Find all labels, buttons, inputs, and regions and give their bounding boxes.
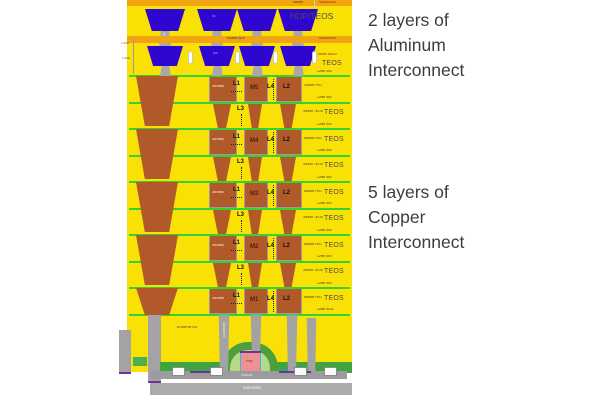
l1-label: L1 (233, 134, 240, 140)
via5-plug (293, 66, 304, 76)
passivation-label: Si3N4/SiO2 (319, 1, 336, 4)
al-metal7-line (237, 9, 277, 31)
l4-label: L4 (267, 296, 274, 302)
sin-label: 12nm SiN (317, 282, 331, 285)
al-metal6-line (147, 46, 183, 66)
seal-label: 3M seal (212, 297, 224, 300)
l2-label: L2 (283, 190, 290, 196)
fsg-label: 550nm FSG (304, 243, 322, 246)
contact-window (294, 367, 307, 376)
aluminum-annotation-line1: 2 layers of (368, 8, 464, 33)
poly-label: Poly (246, 360, 252, 363)
aluminum-annotation-line2: Aluminum (368, 33, 464, 58)
m3-label: M3 (250, 191, 258, 197)
w-plug-pill (273, 51, 278, 64)
sin-label: 12nm SiN (317, 255, 331, 258)
l1-arrow (231, 250, 242, 251)
l1-label: L1 (233, 187, 240, 193)
teos-label: TEOS (324, 268, 344, 275)
teos-small-label: 300nm TEOS (303, 110, 323, 113)
sin-label: 12nm SiN (317, 202, 331, 205)
implant-line (119, 372, 131, 374)
fsg-label: 550nm FSG (304, 190, 322, 193)
m6-label: M6 (213, 52, 218, 55)
l1-arrow (231, 303, 242, 304)
aluminum-annotation: 2 layers of Aluminum Interconnect (368, 8, 464, 83)
seal-label: 3M seal (212, 244, 224, 247)
l3-label: L3 (237, 106, 244, 112)
diffusion-box (133, 357, 147, 366)
bpsg-label: 870nm BPSG (177, 326, 197, 329)
copper-annotation: 5 layers of Copper Interconnect (368, 180, 464, 255)
m2-label: M2 (250, 244, 258, 250)
w-plug-pill (235, 51, 240, 64)
teos-label: TEOS (324, 162, 344, 169)
l4-label: L4 (267, 84, 274, 90)
poly-cap (240, 351, 261, 353)
teos-small-label: 300nm TEOS (303, 269, 323, 272)
sin-label: 12nm SiN (317, 176, 331, 179)
l4-label: L4 (267, 137, 274, 143)
contact-window (324, 367, 337, 376)
al-metal6-line (199, 46, 235, 66)
al-metal6-line (239, 46, 275, 66)
l3-arrow (241, 114, 242, 126)
l3-arrow (241, 273, 242, 285)
ct-w-label: CT W (201, 368, 209, 371)
al-metal7-line (145, 9, 185, 31)
l3-label: L3 (237, 265, 244, 271)
copper-annotation-line1: 5 layers of (368, 180, 464, 205)
fsg-label: 550nm FSG (304, 296, 322, 299)
copper-annotation-line2: Copper (368, 205, 464, 230)
sin-label: 12nm SiN (317, 229, 331, 232)
passivation-label-2: Si3N4/SiO2 (319, 37, 336, 40)
process-cross-section-slide: Si3N4/SiO2 500nm M7 Via6 Si3N4/SiO2 600n… (0, 0, 600, 400)
seal-label: 3M seal (212, 138, 224, 141)
salicide-label: Salicide (241, 374, 253, 377)
l3-label: L3 (237, 159, 244, 165)
dim-500nm-label: 500nm (293, 1, 303, 4)
guard-contact-bar (119, 330, 131, 374)
sin-label: 12nm SiN (317, 70, 331, 73)
l4-label: L4 (267, 190, 274, 196)
contact-plug (286, 315, 298, 373)
m7-label: M7 (212, 15, 217, 18)
al-metal7-line (197, 9, 237, 31)
contact-window (172, 367, 185, 376)
dim-1630-label: 1.630 (122, 57, 130, 60)
m1-label: M1 (250, 297, 258, 303)
dim-600nm-hdp-label: 600nm HDP (227, 37, 245, 40)
copper-annotation-line3: Interconnect (368, 230, 464, 255)
teos-label-al: TEOS (322, 60, 342, 67)
fsg-label: 550nm FSG (304, 137, 322, 140)
l1-arrow (231, 91, 242, 92)
sin-label: 12nm SiN (317, 96, 331, 99)
teos-label: TEOS (324, 189, 344, 196)
l2-label: L2 (283, 84, 290, 90)
teos-label: TEOS (324, 136, 344, 143)
m5-label: M5 (250, 85, 258, 91)
l1-label: L1 (233, 81, 240, 87)
substrate-label: Substrate (228, 386, 276, 390)
l1-arrow (231, 197, 242, 198)
l3-label: L3 (237, 212, 244, 218)
max2-label: 780nm MAX2 (317, 53, 337, 56)
sio2-label: 12nm SiO2 (317, 308, 334, 311)
via5-plug (160, 66, 171, 76)
dim-arrow (133, 38, 134, 74)
l2-label: L2 (283, 243, 290, 249)
al-metal6-line (280, 46, 316, 66)
ct-w-label: CT W (279, 368, 287, 371)
l2-label: L2 (283, 296, 290, 302)
teos-label: TEOS (324, 109, 344, 116)
contact-w-label: Contact W (222, 322, 225, 337)
l1-label: L1 (233, 240, 240, 246)
fsg-label: 150nm FSG (304, 84, 322, 87)
contact-window (210, 367, 223, 376)
l3-arrow (241, 220, 242, 232)
teos-label: TEOS (324, 295, 344, 302)
sin-label: 12nm SiN (317, 123, 331, 126)
l2-label: L2 (283, 137, 290, 143)
sin-label: 12nm SiN (317, 149, 331, 152)
l3-arrow (241, 167, 242, 179)
gate-contact-plug (250, 315, 262, 353)
teos-label: TEOS (324, 215, 344, 222)
dim-2630-label: 2.630 (121, 42, 129, 45)
w-plug-pill (188, 51, 193, 64)
stack-diagram: Si3N4/SiO2 500nm M7 Via6 Si3N4/SiO2 600n… (127, 0, 352, 400)
hdp-teos-label: HDP/TEOS (290, 11, 333, 21)
teos-small-label: 300nm TEOS (303, 163, 323, 166)
via5-plug (212, 66, 223, 76)
contact-plug (306, 318, 317, 373)
seal-label: 3M seal (212, 191, 224, 194)
m4-label: M4 (250, 138, 258, 144)
dim-tick (314, 0, 315, 8)
l4-label: L4 (267, 243, 274, 249)
l1-arrow (231, 144, 242, 145)
teos-label: TEOS (324, 242, 344, 249)
aluminum-annotation-line3: Interconnect (368, 58, 464, 83)
seal-label: 3M seal (212, 85, 224, 88)
teos-small-label: 300nm TEOS (303, 216, 323, 219)
l1-label: L1 (233, 293, 240, 299)
via5-plug (252, 66, 263, 76)
